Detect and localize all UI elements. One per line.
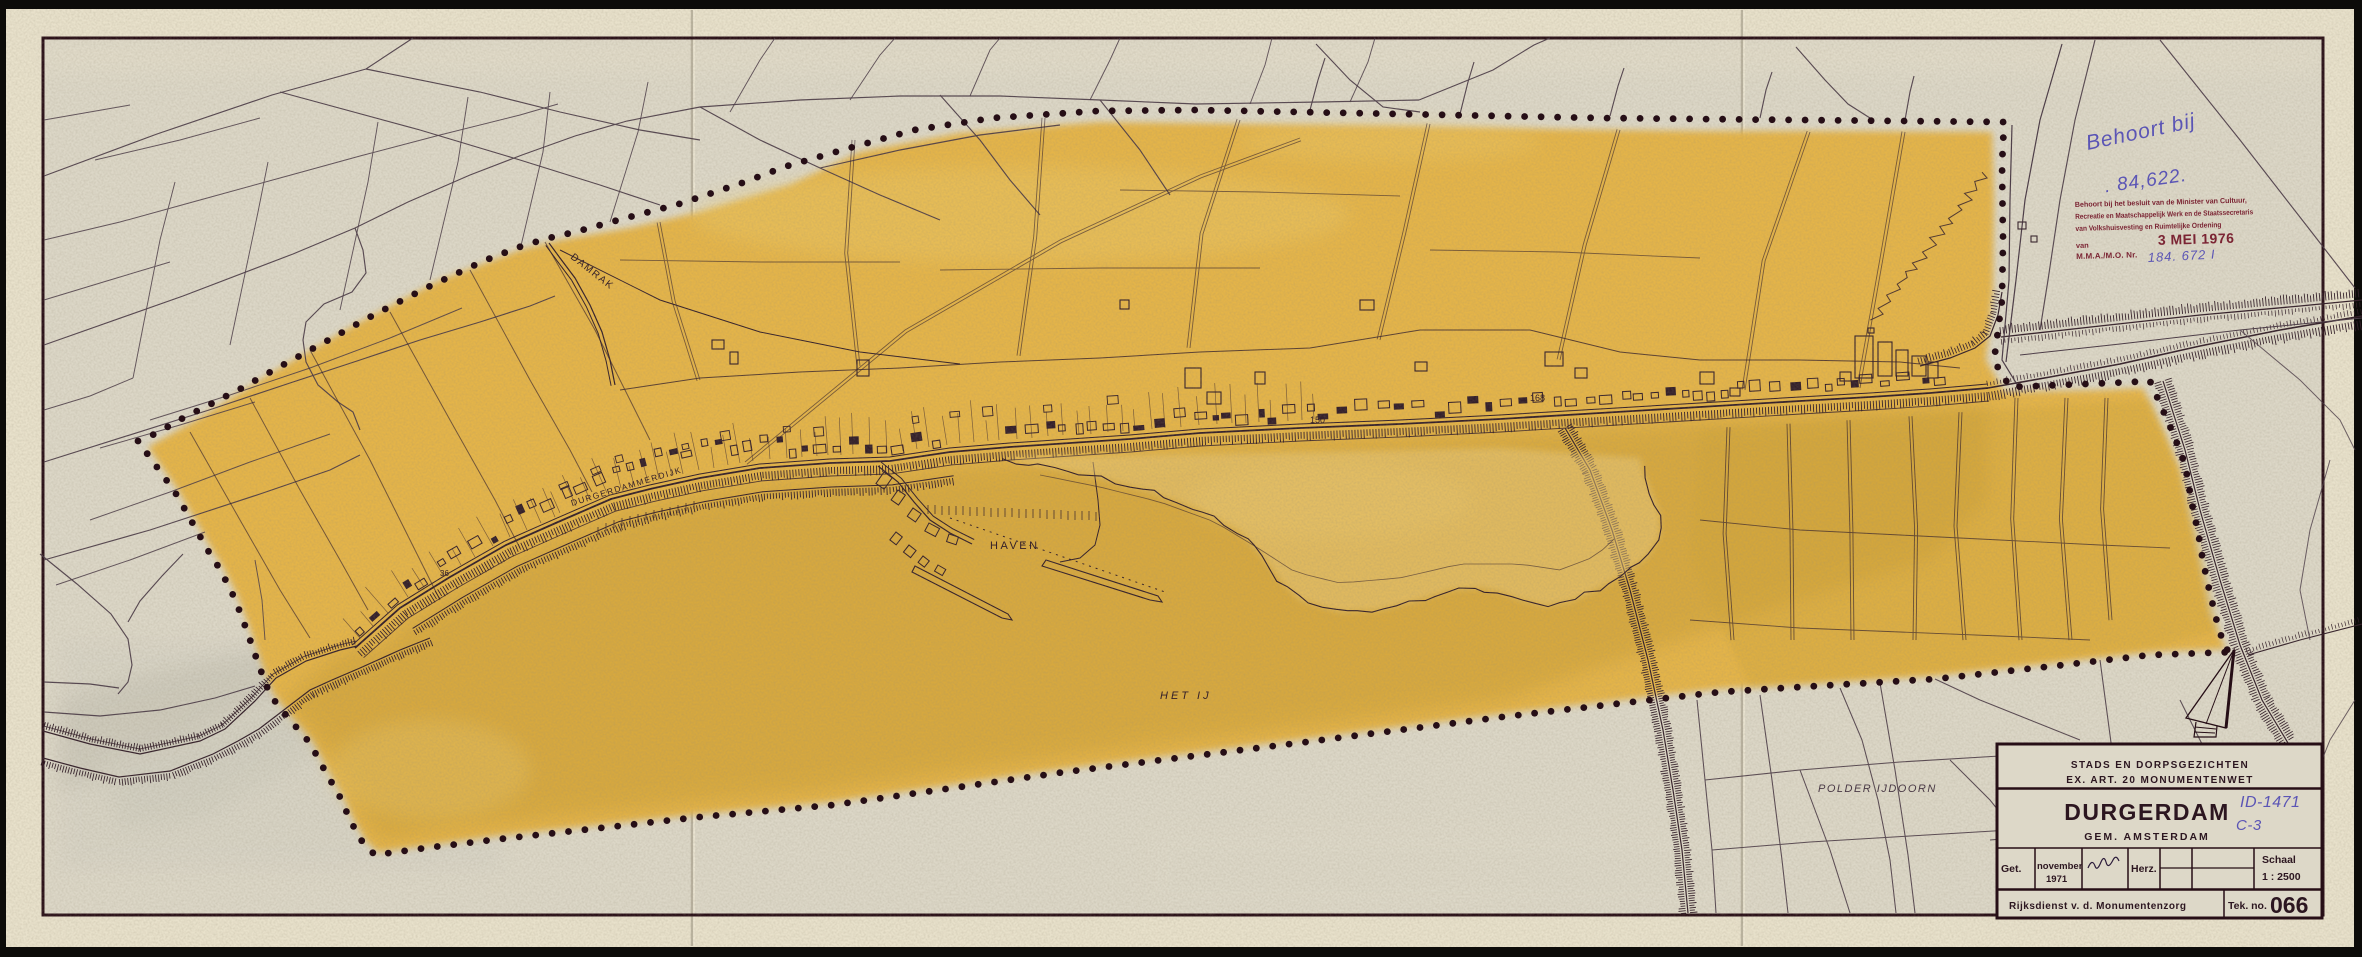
svg-text:DURGERDAM: DURGERDAM: [2064, 799, 2230, 825]
svg-text:Tek. no.: Tek. no.: [2228, 900, 2267, 912]
svg-text:Herz.: Herz.: [2131, 863, 2157, 875]
svg-text:Get.: Get.: [2001, 863, 2022, 875]
svg-text:1971: 1971: [2046, 874, 2068, 885]
svg-text:1 : 2500: 1 : 2500: [2262, 871, 2301, 883]
svg-text:M.M.A./M.O. Nr.: M.M.A./M.O. Nr.: [2076, 250, 2137, 261]
svg-text:Rijksdienst v. d. Monumentenz: Rijksdienst v. d. Monumentenzorg: [2009, 901, 2187, 912]
svg-text:EX. ART. 20 MONUMENTENWET: EX. ART. 20 MONUMENTENWET: [2066, 775, 2253, 786]
svg-text:van: van: [2076, 241, 2089, 250]
svg-text:STADS EN DORPSGEZICHTEN: STADS EN DORPSGEZICHTEN: [2071, 760, 2249, 771]
svg-text:C-3: C-3: [2236, 817, 2262, 834]
svg-text:november: november: [2037, 861, 2083, 872]
svg-text:POLDER IJDOORN: POLDER IJDOORN: [1818, 783, 1937, 795]
svg-text:150: 150: [1310, 415, 1325, 425]
svg-text:3 MEI 1976: 3 MEI 1976: [2158, 230, 2235, 248]
svg-text:168: 168: [1530, 393, 1545, 403]
svg-text:ID-1471: ID-1471: [2240, 794, 2300, 811]
svg-text:HAVEN: HAVEN: [990, 540, 1040, 552]
svg-text:Schaal: Schaal: [2262, 854, 2296, 866]
svg-text:GEM. AMSTERDAM: GEM. AMSTERDAM: [2084, 831, 2210, 843]
svg-text:HET IJ: HET IJ: [1160, 690, 1212, 702]
svg-text:36: 36: [440, 569, 449, 578]
svg-text:066: 066: [2270, 892, 2308, 918]
